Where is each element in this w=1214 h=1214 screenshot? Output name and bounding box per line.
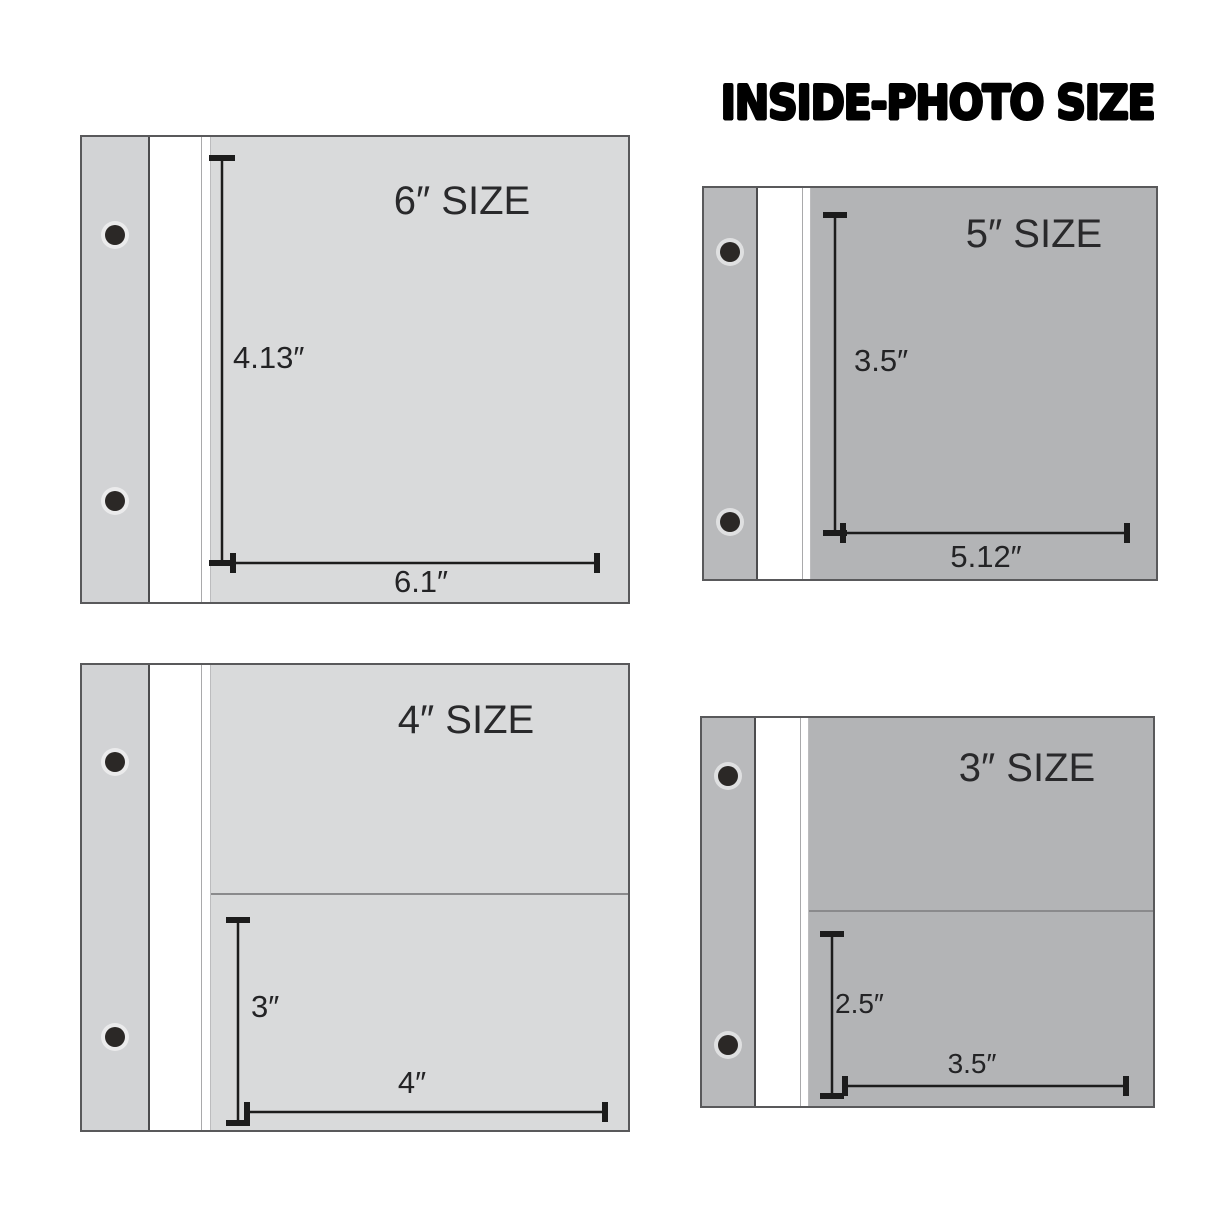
size-title: 3″ SIZE <box>902 744 1152 792</box>
spine-strip <box>150 665 202 1130</box>
height-dimension-label: 4.13″ <box>233 340 304 376</box>
album-page-4-inch: 4″ SIZE 3″ 4″ <box>80 663 630 1132</box>
size-title: 4″ SIZE <box>341 696 591 744</box>
binding-strip <box>704 188 758 579</box>
binding-hole-icon <box>105 752 125 772</box>
binding-strip <box>82 665 150 1130</box>
spine-strip <box>758 188 803 579</box>
spine-gap <box>202 665 211 1130</box>
spine-strip <box>756 718 801 1106</box>
binding-hole-icon <box>720 512 740 532</box>
binding-strip <box>702 718 756 1106</box>
binding-hole-icon <box>720 242 740 262</box>
binding-strip <box>82 137 150 602</box>
binding-hole-icon <box>718 1035 738 1055</box>
height-dimension-label: 3″ <box>251 989 279 1025</box>
album-page-6-inch: 6″ SIZE 4.13″ 6.1″ <box>80 135 630 604</box>
binding-hole-icon <box>105 225 125 245</box>
binding-hole-icon <box>105 491 125 511</box>
spine-gap <box>801 718 809 1106</box>
width-dimension-label: 5.12″ <box>926 539 1046 575</box>
binding-hole-icon <box>105 1027 125 1047</box>
height-dimension-label: 3.5″ <box>854 343 908 379</box>
height-dimension-label: 2.5″ <box>835 987 884 1020</box>
spine-strip <box>150 137 202 602</box>
width-dimension-label: 4″ <box>362 1065 462 1101</box>
album-page-5-inch: 5″ SIZE 3.5″ 5.12″ <box>702 186 1158 581</box>
size-title: 6″ SIZE <box>337 177 587 225</box>
pocket-divider <box>809 910 1153 912</box>
album-page-3-inch: 3″ SIZE 2.5″ 3.5″ <box>700 716 1155 1108</box>
binding-hole-icon <box>718 766 738 786</box>
size-title: 5″ SIZE <box>909 210 1159 258</box>
spine-gap <box>202 137 211 602</box>
page-title: INSIDE-PHOTO SIZE <box>711 76 1164 132</box>
spine-gap <box>803 188 811 579</box>
width-dimension-label: 6.1″ <box>371 564 471 600</box>
width-dimension-label: 3.5″ <box>922 1047 1022 1080</box>
pocket-divider <box>211 893 628 895</box>
